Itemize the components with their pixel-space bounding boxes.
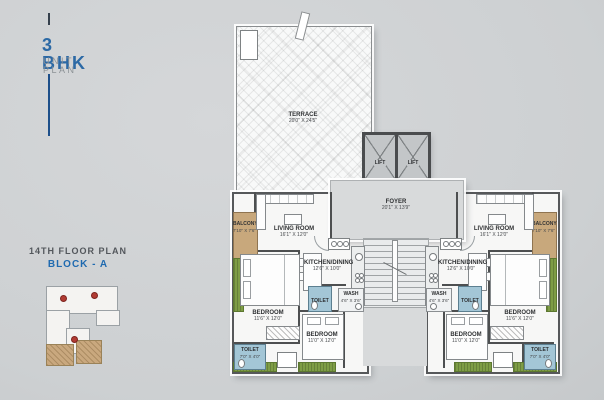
- lift-block: LIFT LIFT: [362, 132, 428, 180]
- lift-shaft-2: LIFT: [395, 132, 431, 182]
- coffee-table-left: [284, 214, 302, 225]
- planter-right-bottom-2: [454, 362, 492, 372]
- foyer-label: FOYER 20'1" X 13'9": [366, 199, 426, 212]
- planter-left-bottom-2: [298, 362, 336, 372]
- bedroom1-left-label: BEDROOM 11'6" X 12'0": [240, 310, 296, 323]
- bedroom2-right-label: BEDROOM 11'0" X 12'0": [445, 332, 487, 345]
- stair-divider: [392, 240, 398, 302]
- wardrobe-right-1: [490, 326, 524, 340]
- bed-left-1: [240, 254, 300, 306]
- balcony-left-label: BALCONY 7'10" X 7'6": [233, 222, 256, 233]
- coffee-table-right: [488, 214, 506, 225]
- duct-right: [493, 352, 513, 368]
- lift-1-label: LIFT: [365, 151, 395, 169]
- living-right-label: LIVING ROOM 16'1" X 12'0": [464, 226, 524, 239]
- sofa-left: [260, 194, 314, 204]
- bedroom1-right-label: BEDROOM 11'6" X 12'0": [492, 310, 548, 323]
- ots-box-right: [440, 238, 462, 250]
- kitchen-left-label: KITCHEN/DINING 12'6" X 10'0": [304, 260, 350, 273]
- terrace-column: [240, 30, 258, 60]
- floor-plan-page: { "title": { "main": "3 BHK", "sub": "UN…: [0, 0, 604, 400]
- duct-left: [277, 352, 297, 368]
- sofa-right-corner: [524, 194, 534, 230]
- main-floor-plan: TERRACE 20'0" X 24'5" LIFT LIFT FOYER 20…: [0, 0, 604, 400]
- wash-left: WASH 4'6" X 3'6": [338, 288, 364, 312]
- balcony-right: [532, 212, 557, 260]
- wash-right: WASH 4'6" X 3'6": [426, 288, 452, 312]
- kitchen-right-label: KITCHEN/DINING 12'6" X 10'0": [438, 260, 484, 273]
- sofa-right: [476, 194, 530, 204]
- balcony-left: [233, 212, 258, 260]
- toilet-right-a: TOILET: [458, 286, 482, 312]
- bedroom2-left-label: BEDROOM 11'0" X 12'0": [301, 332, 343, 345]
- terrace-label: TERRACE 20'0" X 24'5": [273, 112, 333, 125]
- toilet-left-a: TOILET: [308, 286, 332, 312]
- living-left-label: LIVING ROOM 16'1" X 12'0": [264, 226, 324, 239]
- wardrobe-left-1: [266, 326, 300, 340]
- bed-right-1: [490, 254, 550, 306]
- toilet-left-b: TOILET 7'0" X 4'0": [234, 344, 266, 370]
- toilet-right-b: TOILET 7'0" X 4'0": [524, 344, 556, 370]
- balcony-right-label: BALCONY 7'10" X 7'6": [532, 222, 555, 233]
- sofa-left-corner: [256, 194, 266, 230]
- ots-box-left: [328, 238, 350, 250]
- lift-shaft-1: LIFT: [362, 132, 398, 182]
- lift-2-label: LIFT: [398, 151, 428, 169]
